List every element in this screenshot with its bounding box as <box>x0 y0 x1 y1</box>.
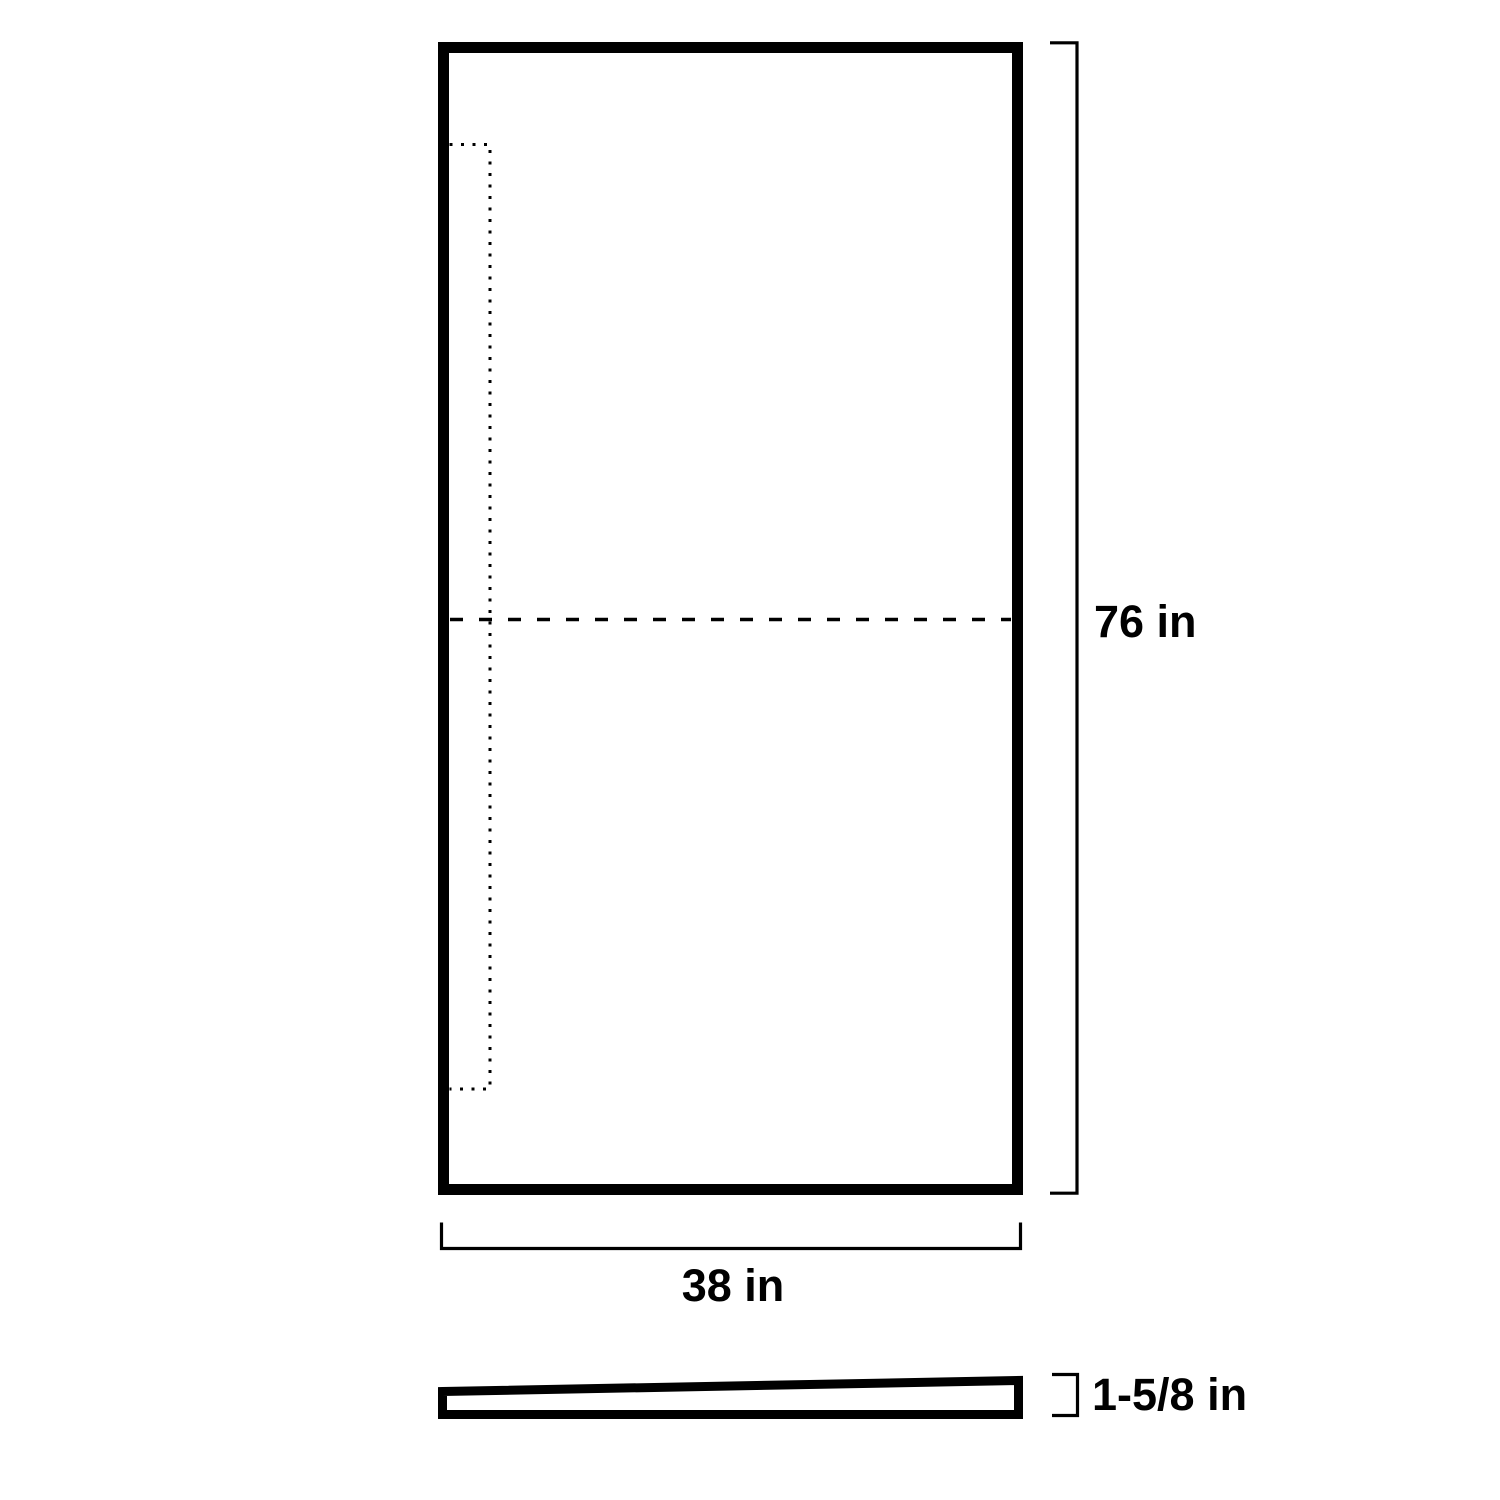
thickness-dimension-label: 1-5/8 in <box>1092 1369 1247 1420</box>
panel-front-outline <box>444 48 1018 1190</box>
diagram-canvas: 76 in 38 in 1-5/8 in <box>0 0 1500 1500</box>
thickness-dimension-bracket <box>1052 1375 1078 1416</box>
width-dimension-label: 38 in <box>682 1260 785 1311</box>
height-dimension-label: 76 in <box>1094 596 1197 647</box>
width-dimension-bracket <box>442 1223 1021 1249</box>
height-dimension-bracket <box>1050 43 1077 1193</box>
side-profile-wedge <box>443 1381 1019 1415</box>
dimension-drawing: 76 in 38 in 1-5/8 in <box>0 0 1500 1500</box>
